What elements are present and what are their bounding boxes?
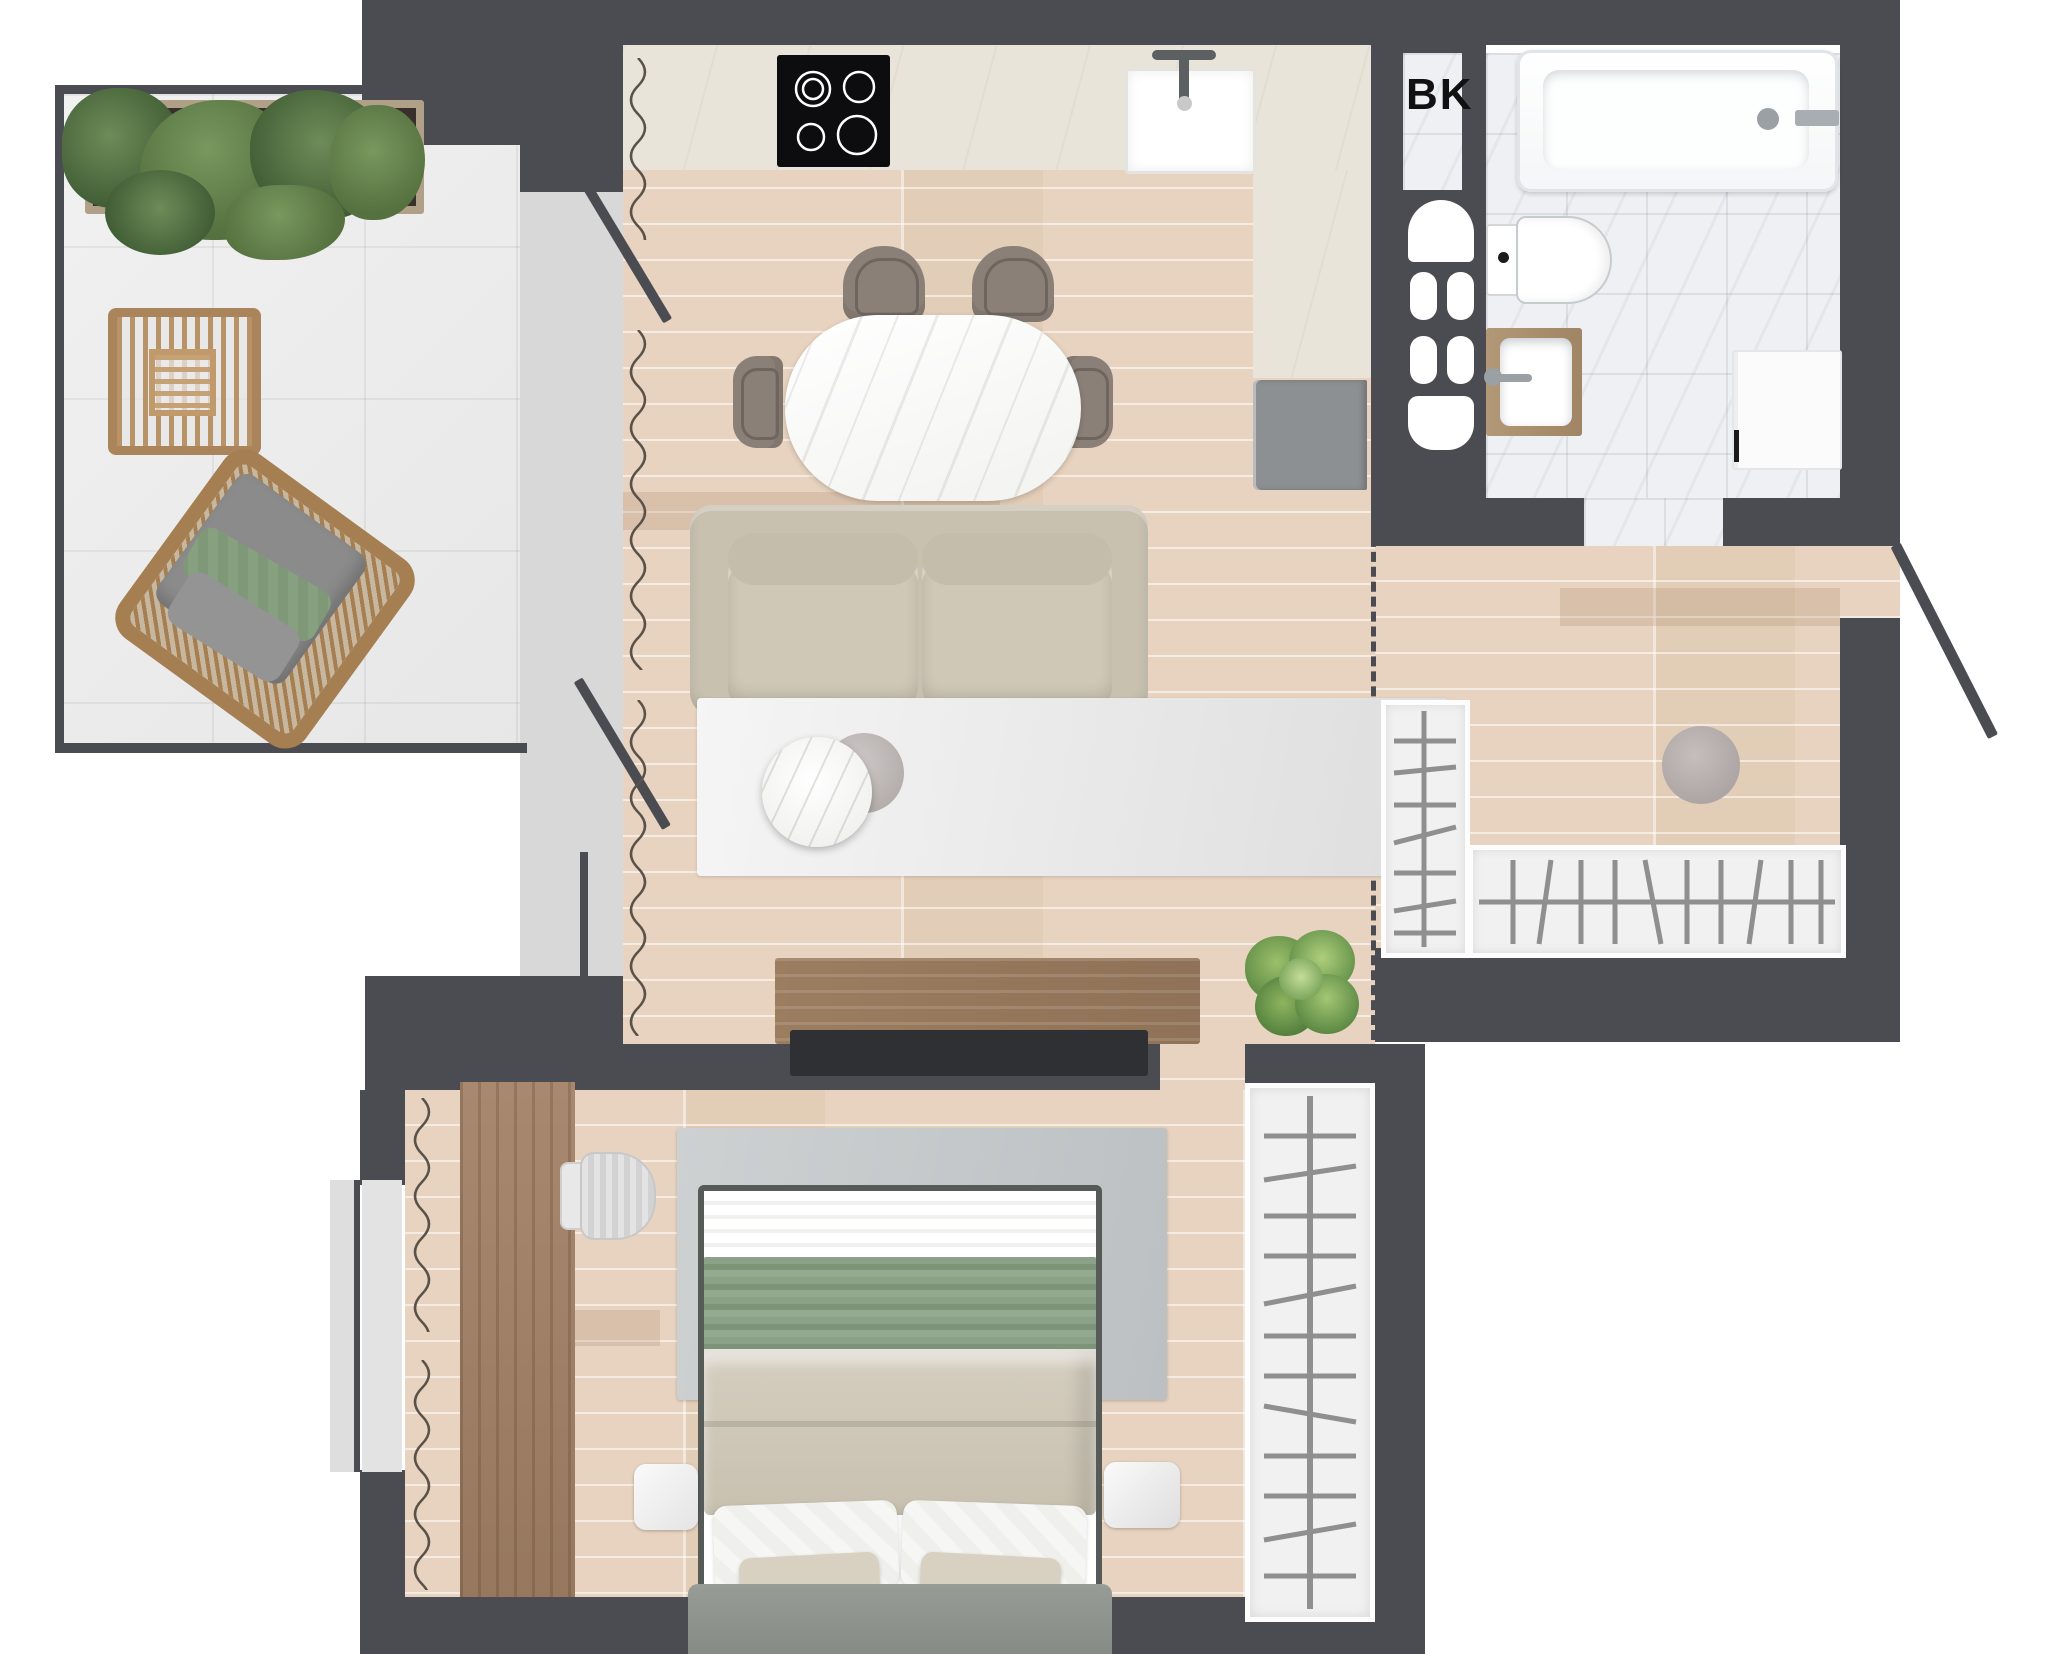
utility-fixture-box [1408,396,1474,450]
bedroom-window-panel [330,1180,354,1472]
balcony-wall-left [55,85,64,752]
wall [520,0,623,192]
floor-plank-accent [1560,588,1840,626]
sofa-back-cushion [728,533,918,585]
bedroom-window-panel [362,1180,402,1472]
sofa [690,505,1148,715]
washing-machine [1732,350,1842,470]
bathtub [1517,50,1838,192]
entry-door-leaf [1891,543,1998,740]
wardrobe-rail-hangers [1473,850,1841,953]
toilet-button [1498,252,1509,263]
balcony-threshold [520,192,623,976]
bed-sheet [704,1191,1096,1263]
sink-drain [1177,96,1192,111]
threshold-post [580,852,588,976]
bathtub-drain [1757,108,1779,130]
kitchen-stone-floor [1253,170,1371,378]
curtain [408,1360,436,1590]
hall-wardrobe-vertical [1381,700,1470,958]
bathtub-faucet [1795,110,1839,126]
wall-mid-left [365,976,623,1090]
washing-machine-detail [1734,430,1739,462]
induction-cooktop [777,55,890,167]
chair-seat-line [855,258,919,316]
curtain [624,58,652,240]
kitchen-sink [1125,68,1256,174]
potted-plant [1237,928,1365,1042]
dining-chair [733,356,783,448]
table-inner-shelf [149,349,216,416]
cooktop-burners [777,55,890,167]
utility-fixture-pill [1410,272,1437,320]
toilet [1486,216,1610,300]
nightstand [1104,1462,1180,1528]
dining-chair [843,246,925,322]
vanity-faucet-base [1484,368,1502,386]
curtain [624,700,652,1036]
bedroom-desk [460,1082,575,1597]
bedroom-doorway-floor [1160,1044,1245,1090]
utility-fixture-pill [1447,272,1474,320]
wall-bathroom-bottom [1723,498,1840,546]
floor-plan: BK [0,0,2048,1654]
bathroom-doorway-floor [1584,498,1723,546]
toilet-bowl [1516,216,1612,304]
window-mullion [354,1180,360,1472]
wardrobe-rail-hangers [1250,1088,1370,1617]
room-label-bk: BK [1406,70,1474,120]
wall-bathroom-right [1840,45,1900,546]
bedroom-wardrobe [1245,1083,1375,1622]
wall-hallway-bottom [1375,948,1900,1042]
utility-fixture-pill [1447,336,1474,384]
curtain [624,330,652,670]
nightstand [634,1464,698,1530]
office-chair-seat [580,1152,656,1240]
bed-green-blanket [704,1257,1096,1351]
wall-bedroom-right [1368,1044,1425,1654]
hallway-pouf [1662,726,1740,804]
wardrobe-rail-hangers [1386,705,1465,953]
bed-headboard [688,1584,1112,1654]
plant-leaf [1279,958,1323,1000]
office-chair [560,1148,655,1240]
curtain [408,1098,436,1332]
utility-fixture-pill [1410,336,1437,384]
refrigerator [1253,380,1367,490]
chair-seat-line [984,258,1048,316]
dining-table [785,315,1081,501]
entry-threshold [1840,546,1900,618]
utility-fixture-arch [1408,200,1474,262]
sofa-back-cushion [922,533,1112,585]
rattan-side-table [108,308,261,455]
kitchen-counter [623,45,1371,170]
bed-duvet [704,1349,1096,1515]
plant-foliage [105,170,215,255]
tv [790,1030,1148,1076]
hall-wardrobe-horizontal [1468,845,1846,958]
wall-bathroom-bottom [1371,498,1584,546]
bed-duvet-fold [704,1421,1096,1427]
wall-bedroom-left [360,1090,405,1185]
dining-chair [972,246,1054,322]
vanity-sink [1500,338,1572,426]
vanity [1486,328,1582,436]
coffee-table [762,737,872,847]
chair-seat-line [741,368,779,440]
wall-top [623,0,1900,45]
